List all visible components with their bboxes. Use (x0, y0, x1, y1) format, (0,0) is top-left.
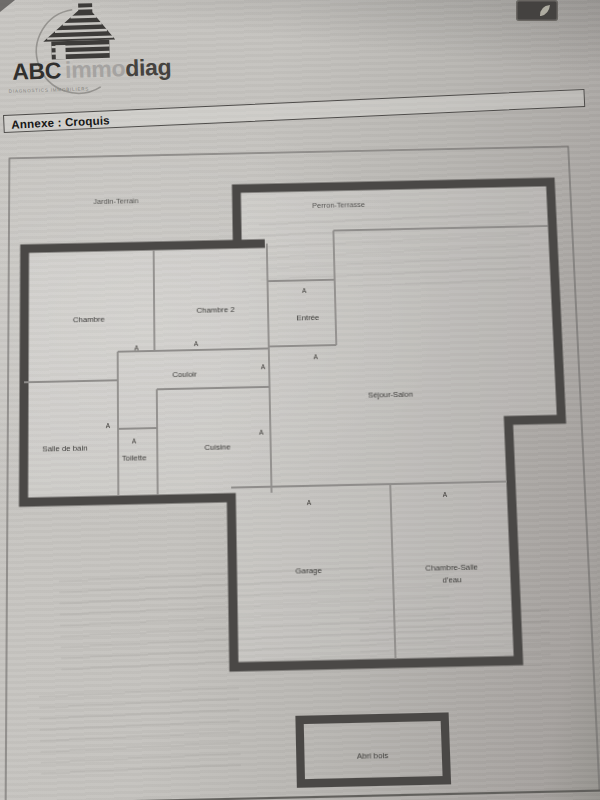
area-label-perron: Perron-Terrasse (312, 200, 365, 210)
scanned-page: { "logo": { "brand_part1": "ABC", "brand… (0, 0, 600, 800)
room-label-chambre-salle-eau: Chambre-Salle (425, 562, 478, 573)
room-label-chambre: Chambre (73, 315, 105, 325)
room-label-couloir: Couloir (172, 370, 197, 380)
area-label-jardin: Jardin-Terrain (94, 196, 139, 206)
floor-plan: Jardin-Terrain Perron-Terrasse Chambre C… (0, 7, 600, 800)
room-label-toilette: Toilette (122, 453, 147, 463)
room-label-abri-bois: Abri bois (357, 751, 389, 761)
room-label-sejour: Séjour-Salon (368, 390, 413, 400)
room-label-chambre2: Chambre 2 (196, 305, 234, 315)
room-label-salle-de-bain: Salle de bain (42, 443, 87, 453)
room-label-cuisine: Cuisine (204, 442, 230, 452)
page-bottom-line (0, 790, 600, 800)
room-label-chambre-salle-eau-2: d'eau (442, 575, 461, 585)
room-label-garage: Garage (295, 566, 322, 576)
room-label-entree: Entrée (296, 313, 319, 322)
